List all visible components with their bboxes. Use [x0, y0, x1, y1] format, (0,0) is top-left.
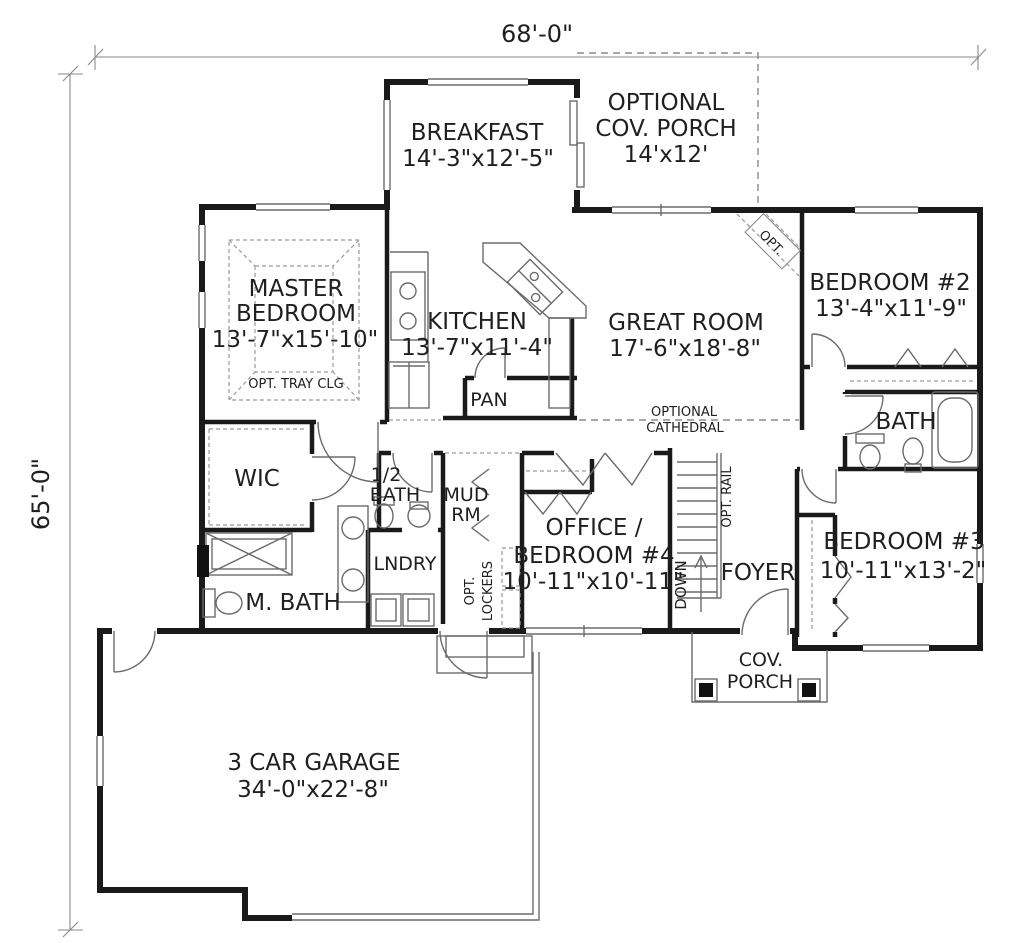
- label-bedroom3-size: 10'-11"x13'-2": [820, 558, 986, 584]
- label-kitchen-size: 13'-7"x11'-4": [401, 335, 553, 361]
- exterior-walls: [100, 82, 980, 918]
- label-opt-porch-2: COV. PORCH: [595, 116, 736, 142]
- label-half-bath-1: 1/2: [371, 464, 402, 486]
- label-cov-porch-1: COV.: [739, 649, 783, 671]
- dim-width-label: 68'-0": [501, 20, 573, 48]
- label-great-room-size: 17'-6"x18'-8": [609, 336, 761, 362]
- floor-plan: OPT.: [0, 0, 1024, 943]
- label-cathedral-2: CATHEDRAL: [646, 421, 724, 436]
- label-garage: 3 CAR GARAGE: [227, 750, 400, 776]
- label-great-room: GREAT ROOM: [608, 310, 764, 336]
- label-wic: WIC: [234, 466, 280, 492]
- label-bedroom2-size: 13'-4"x11'-9": [815, 296, 967, 322]
- label-half-bath-2: BATH: [370, 484, 420, 506]
- windows: [94, 76, 986, 786]
- label-master-2: BEDROOM: [236, 301, 356, 327]
- label-kitchen: KITCHEN: [427, 309, 527, 335]
- label-laundry: LNDRY: [373, 553, 436, 575]
- label-garage-size: 34'-0"x22'-8": [237, 777, 389, 803]
- label-opt-porch-size: 14'x12': [624, 142, 709, 168]
- label-bath2: BATH: [875, 409, 936, 435]
- label-lockers-1: OPT.: [463, 577, 478, 606]
- dim-height-label: 65'-0": [27, 458, 55, 530]
- label-lockers-2: LOCKERS: [481, 561, 496, 621]
- label-master-1: MASTER: [249, 276, 344, 302]
- label-breakfast: BREAKFAST: [411, 120, 545, 146]
- label-foyer: FOYER: [721, 560, 796, 586]
- label-breakfast-size: 14'-3"x12'-5": [402, 146, 554, 172]
- wall-openings: [112, 98, 851, 637]
- label-bedroom3: BEDROOM #3: [823, 529, 984, 555]
- label-office-2: BEDROOM #4: [513, 543, 674, 569]
- label-mud-room-1: MUD: [444, 484, 489, 506]
- label-pantry: PAN: [470, 389, 507, 411]
- label-cathedral-1: OPTIONAL: [651, 405, 718, 420]
- label-office-1: OFFICE /: [546, 515, 643, 541]
- label-bedroom2: BEDROOM #2: [809, 270, 970, 296]
- label-opt-porch-1: OPTIONAL: [608, 90, 725, 116]
- label-cov-porch-2: PORCH: [727, 671, 793, 693]
- label-stairs-down: DOWN: [672, 560, 690, 609]
- label-mud-room-2: RM: [451, 504, 481, 526]
- label-office-size: 10'-11"x10'-11": [502, 569, 683, 595]
- label-opt-rail: OPT. RAIL: [720, 466, 735, 528]
- label-master-size: 13'-7"x15'-10": [212, 327, 378, 353]
- optional-fireplace: OPT.: [737, 214, 800, 276]
- label-master-note: OPT. TRAY CLG: [248, 377, 344, 392]
- floor-plan-page: OPT.: [0, 0, 1024, 943]
- rear-stoop: [437, 636, 532, 673]
- label-master-bath: M. BATH: [245, 590, 341, 616]
